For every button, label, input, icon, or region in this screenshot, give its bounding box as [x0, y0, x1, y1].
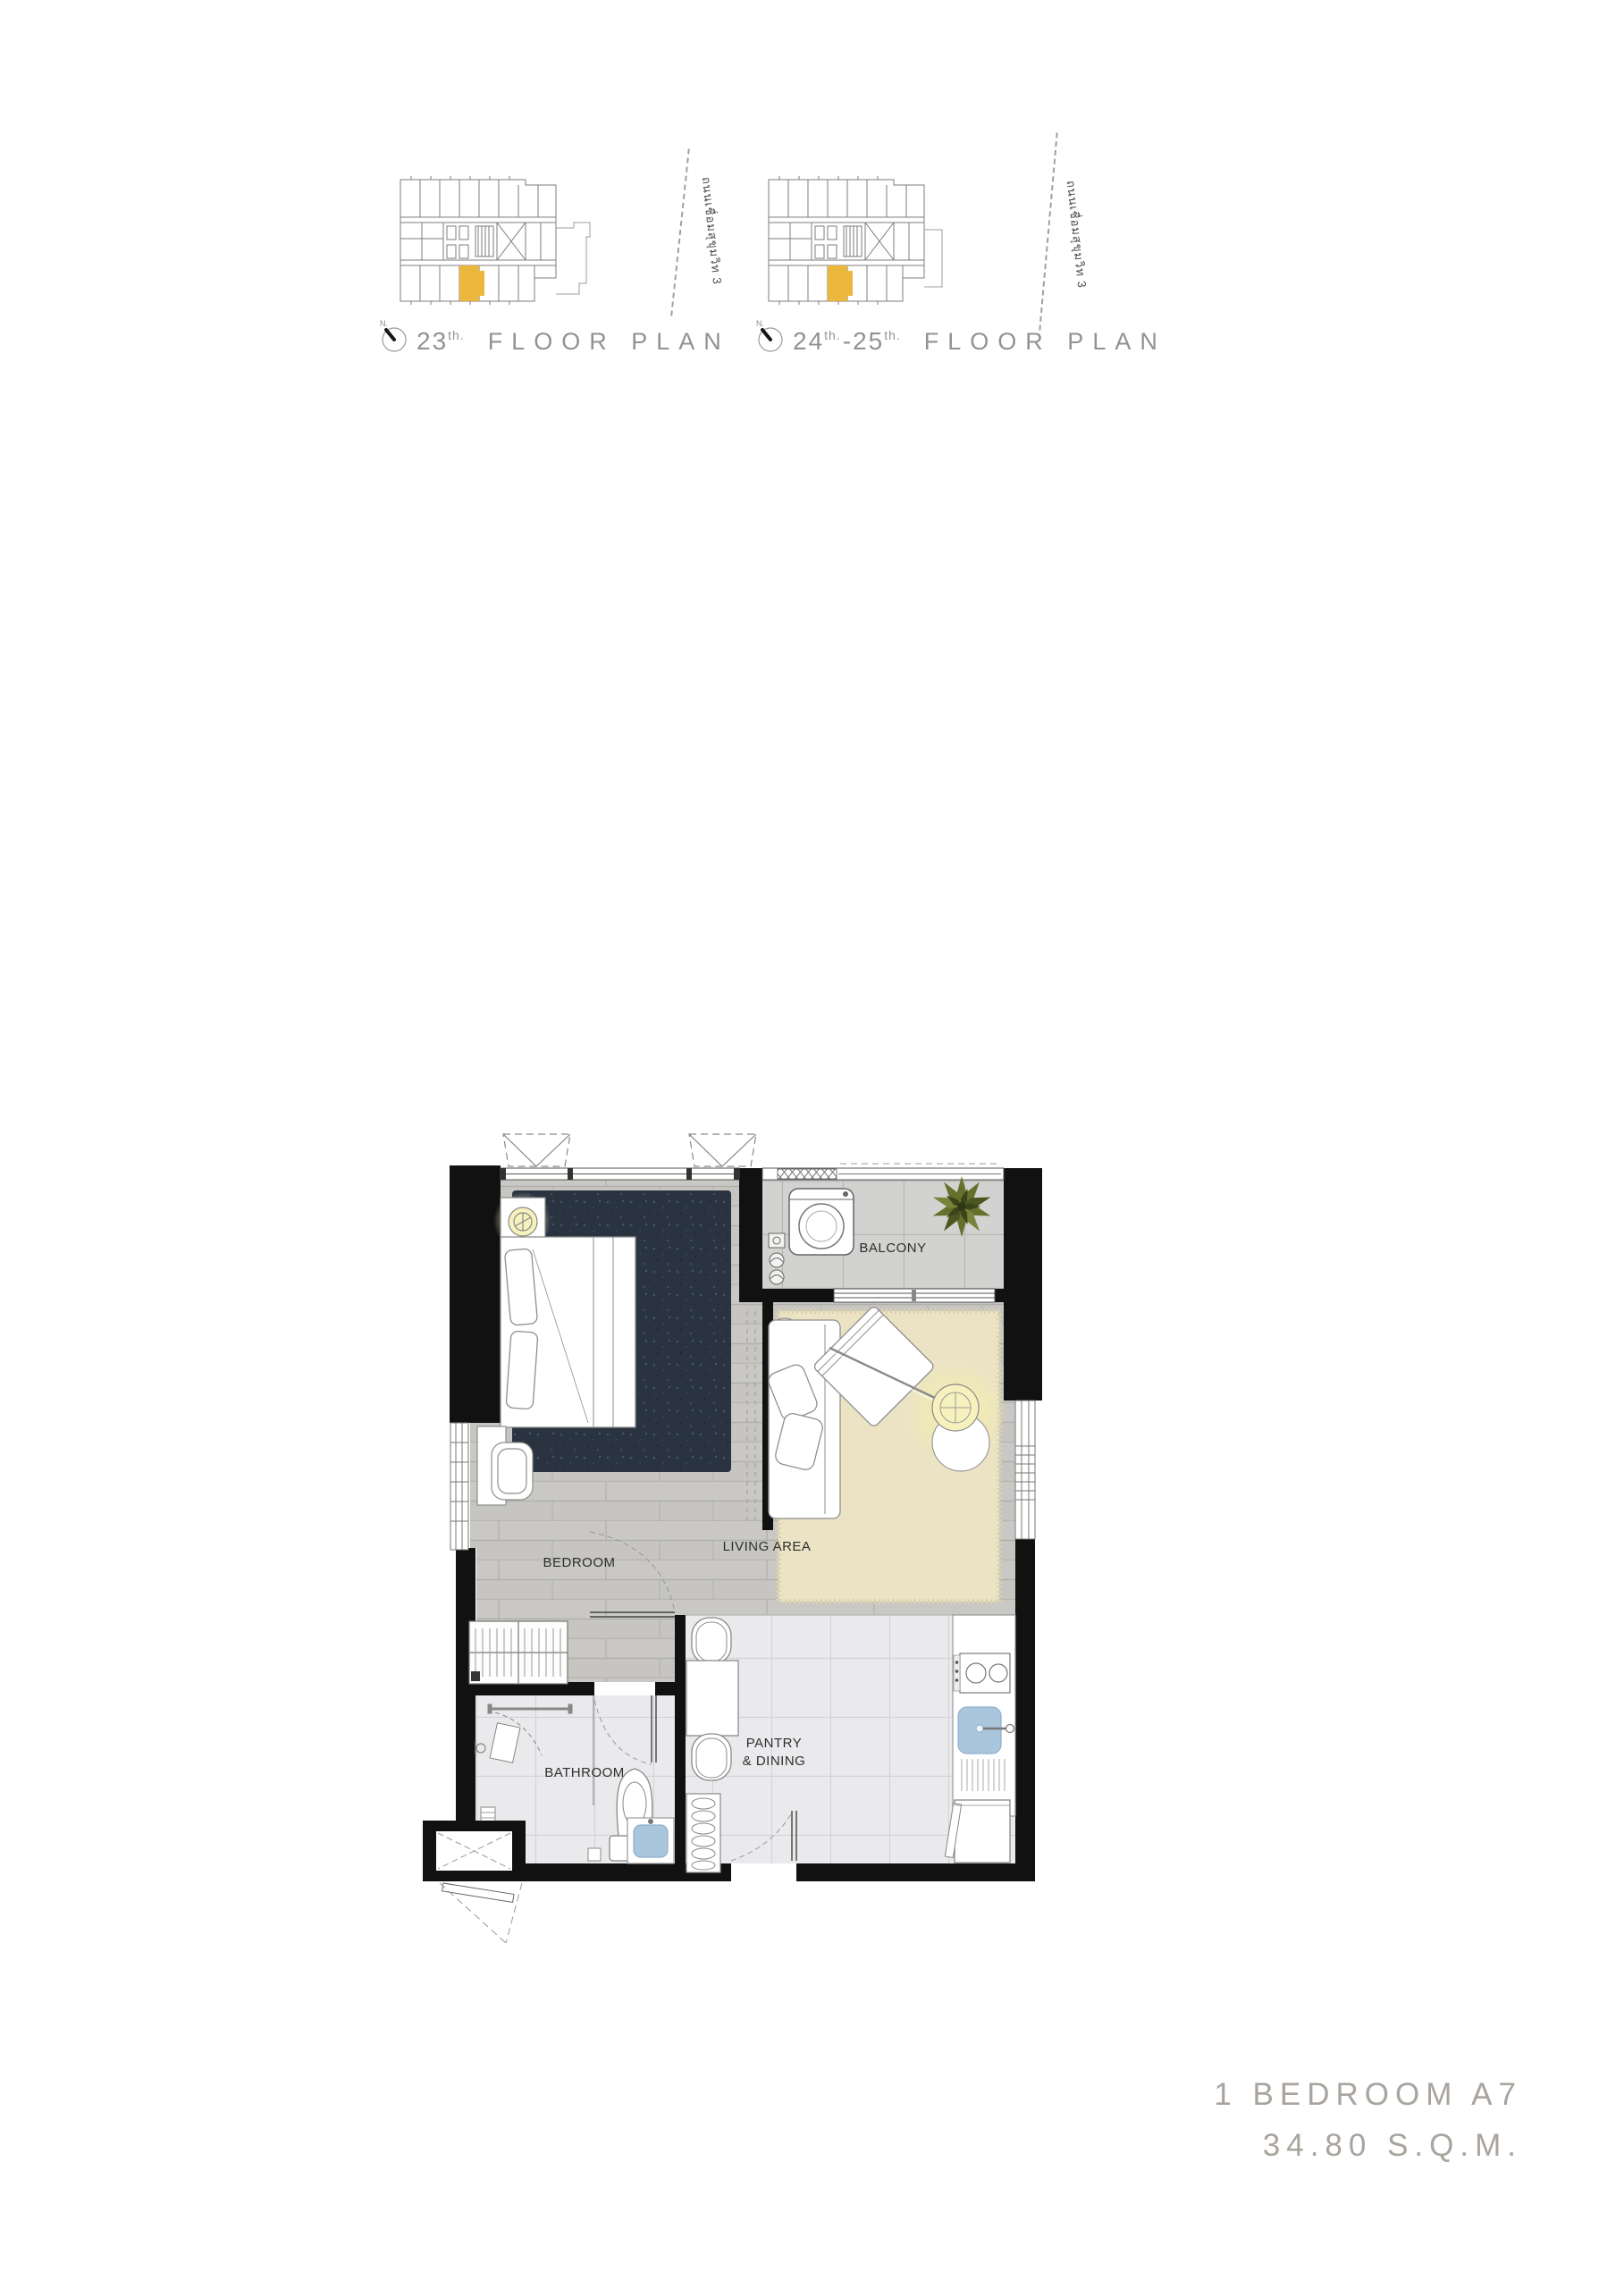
shoe-cabinet — [686, 1794, 720, 1872]
room-label-balcony: BALCONY — [859, 1241, 926, 1256]
annex-outline — [556, 223, 590, 294]
room-label-bedroom: BEDROOM — [543, 1555, 615, 1570]
bedroom-window — [501, 1168, 739, 1180]
room-label-living-area: LIVING AREA — [723, 1539, 812, 1554]
unit-area: 34.80 S.Q.M. — [1055, 2126, 1522, 2166]
balcony-top-edge — [762, 1164, 1004, 1180]
room-label-pantry: PANTRY — [746, 1736, 802, 1751]
refrigerator — [945, 1800, 1010, 1863]
wardrobe — [469, 1621, 568, 1684]
floor-number-start: 24 — [793, 329, 824, 354]
bathroom-vanity — [627, 1818, 674, 1863]
unit-summary: 1 BEDROOM A7 34.80 S.Q.M. — [1055, 2075, 1522, 2166]
annex-outline — [924, 230, 942, 287]
kitchen-counter — [953, 1615, 1015, 1816]
brochure-page: N. 23th. FLOOR PLAN ถนนเชื่อมสุขุมวิท 3 … — [0, 0, 1624, 2288]
road-label: ถนนเชื่อมสุขุมวิท 3 — [699, 155, 729, 307]
road-label: ถนนเชื่อมสุขุมวิท 3 — [1064, 158, 1094, 311]
floor-suffix-start: th. — [824, 329, 841, 341]
floor-plan-label: FLOOR PLAN — [488, 329, 730, 354]
awning-icon — [503, 1134, 756, 1166]
entrance-vestibule — [423, 1821, 526, 1943]
site-plan-24-25 — [760, 171, 965, 312]
entry-door-leaf — [442, 1883, 514, 1902]
floor-number: 23 — [417, 329, 448, 354]
living-side-window — [1015, 1401, 1035, 1539]
floor-number-end: 25 — [853, 329, 884, 354]
floor-plan-title-24-25: 24th.-25th. FLOOR PLAN — [755, 318, 1166, 354]
floor-suffix-end: th. — [884, 329, 901, 341]
room-label-bathroom: BATHROOM — [544, 1765, 625, 1780]
balcony-sliding-door — [834, 1289, 995, 1302]
road-boundary-line — [1039, 132, 1057, 330]
floor-plan-label: FLOOR PLAN — [924, 329, 1166, 354]
unit-floor-plan: BALCONY LIVING AREA BEDROOM BATHROOM PAN… — [418, 1128, 1053, 1986]
ac-condenser-icon — [769, 1233, 785, 1284]
bed — [501, 1237, 635, 1427]
north-compass-icon — [755, 318, 787, 354]
bedroom-side-window — [450, 1423, 468, 1550]
room-label-pantry-dining: & DINING — [743, 1754, 806, 1769]
site-plan-23 — [391, 171, 597, 312]
floor-range-dash: - — [843, 329, 851, 354]
road-boundary-line — [670, 148, 690, 315]
floor-plan-title-23: 23th. FLOOR PLAN — [379, 318, 730, 354]
north-compass-icon — [379, 318, 411, 354]
stove — [954, 1653, 1010, 1693]
washing-machine — [789, 1189, 854, 1255]
dining-set — [686, 1618, 738, 1780]
unit-type: 1 BEDROOM A7 — [1055, 2075, 1522, 2115]
floor-suffix: th. — [448, 329, 465, 341]
